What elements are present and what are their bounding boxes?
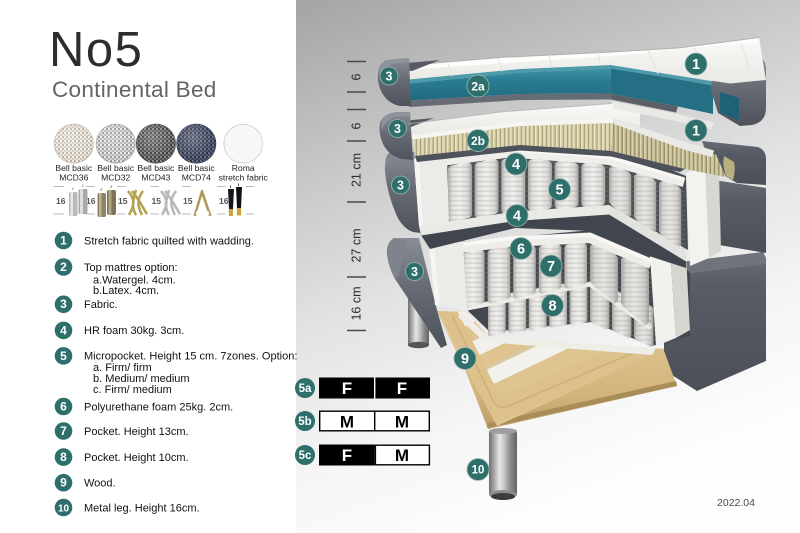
svg-text:MCD36: MCD36 bbox=[59, 173, 88, 183]
svg-text:F: F bbox=[342, 379, 352, 398]
svg-text:b.Latex. 4cm.: b.Latex. 4cm. bbox=[93, 285, 159, 297]
svg-text:2022.04: 2022.04 bbox=[717, 497, 755, 509]
svg-text:16: 16 bbox=[219, 196, 229, 206]
svg-text:7: 7 bbox=[547, 259, 555, 275]
svg-text:7: 7 bbox=[60, 424, 67, 438]
svg-text:Metal leg. Height 16cm.: Metal leg. Height 16cm. bbox=[84, 502, 200, 514]
svg-text:2b: 2b bbox=[471, 134, 485, 148]
svg-text:Wood.: Wood. bbox=[84, 478, 116, 490]
svg-text:6: 6 bbox=[517, 242, 525, 258]
svg-text:5a: 5a bbox=[299, 383, 312, 395]
svg-text:15: 15 bbox=[152, 196, 162, 206]
svg-text:5: 5 bbox=[60, 349, 67, 363]
svg-text:c. Firm/ medium: c. Firm/ medium bbox=[93, 384, 172, 396]
svg-text:Roma: Roma bbox=[232, 163, 255, 173]
svg-text:1: 1 bbox=[60, 234, 67, 248]
svg-text:MCD32: MCD32 bbox=[101, 173, 130, 183]
svg-text:9: 9 bbox=[60, 476, 67, 490]
svg-text:3: 3 bbox=[394, 122, 401, 136]
svg-text:6: 6 bbox=[60, 399, 67, 413]
svg-text:Pocket. Height 13cm.: Pocket. Height 13cm. bbox=[84, 426, 189, 438]
svg-text:3: 3 bbox=[386, 70, 393, 84]
svg-text:9: 9 bbox=[461, 352, 469, 368]
svg-text:3: 3 bbox=[411, 265, 418, 279]
svg-text:21 cm: 21 cm bbox=[350, 153, 364, 187]
svg-text:M: M bbox=[395, 446, 409, 465]
svg-text:MCD43: MCD43 bbox=[141, 173, 170, 183]
svg-text:6: 6 bbox=[350, 73, 364, 80]
svg-text:4: 4 bbox=[512, 157, 520, 173]
svg-text:MCD74: MCD74 bbox=[182, 173, 211, 183]
svg-text:Fabric.: Fabric. bbox=[84, 299, 118, 311]
svg-text:27 cm: 27 cm bbox=[350, 228, 364, 262]
svg-text:16: 16 bbox=[56, 196, 66, 206]
svg-text:Bell basic: Bell basic bbox=[138, 163, 175, 173]
svg-text:1: 1 bbox=[692, 124, 700, 140]
svg-text:5b: 5b bbox=[298, 416, 311, 428]
svg-text:10: 10 bbox=[472, 465, 485, 477]
svg-text:2: 2 bbox=[60, 260, 67, 274]
svg-text:3: 3 bbox=[60, 297, 67, 311]
svg-text:8: 8 bbox=[60, 450, 67, 464]
svg-text:F: F bbox=[342, 446, 352, 465]
svg-text:4: 4 bbox=[60, 323, 67, 337]
svg-text:5c: 5c bbox=[299, 450, 312, 462]
svg-text:15: 15 bbox=[118, 196, 128, 206]
svg-text:stretch fabric: stretch fabric bbox=[219, 173, 269, 183]
svg-text:16 cm: 16 cm bbox=[350, 286, 364, 320]
svg-text:Stretch fabric quilted with wa: Stretch fabric quilted with wadding. bbox=[84, 235, 254, 247]
svg-text:Bell basic: Bell basic bbox=[178, 163, 215, 173]
svg-text:Top mattres option:: Top mattres option: bbox=[84, 262, 178, 274]
svg-text:Continental Bed: Continental Bed bbox=[52, 77, 217, 102]
svg-text:No5: No5 bbox=[49, 23, 143, 77]
svg-text:Bell basic: Bell basic bbox=[55, 163, 92, 173]
svg-text:Polyurethane foam 25kg. 2cm.: Polyurethane foam 25kg. 2cm. bbox=[84, 401, 233, 413]
svg-text:M: M bbox=[340, 413, 354, 432]
svg-text:8: 8 bbox=[548, 299, 556, 315]
svg-text:Pocket. Height 10cm.: Pocket. Height 10cm. bbox=[84, 452, 189, 464]
svg-text:2a: 2a bbox=[471, 79, 485, 93]
svg-text:1: 1 bbox=[692, 57, 700, 73]
svg-text:6: 6 bbox=[350, 122, 364, 129]
svg-text:5: 5 bbox=[555, 183, 563, 199]
svg-text:F: F bbox=[397, 379, 407, 398]
svg-text:4: 4 bbox=[513, 209, 521, 225]
svg-text:15: 15 bbox=[183, 196, 193, 206]
svg-text:M: M bbox=[395, 413, 409, 432]
svg-text:3: 3 bbox=[397, 179, 404, 193]
svg-text:HR foam 30kg. 3cm.: HR foam 30kg. 3cm. bbox=[84, 325, 184, 337]
svg-text:10: 10 bbox=[58, 503, 70, 514]
svg-text:Bell basic: Bell basic bbox=[97, 163, 134, 173]
